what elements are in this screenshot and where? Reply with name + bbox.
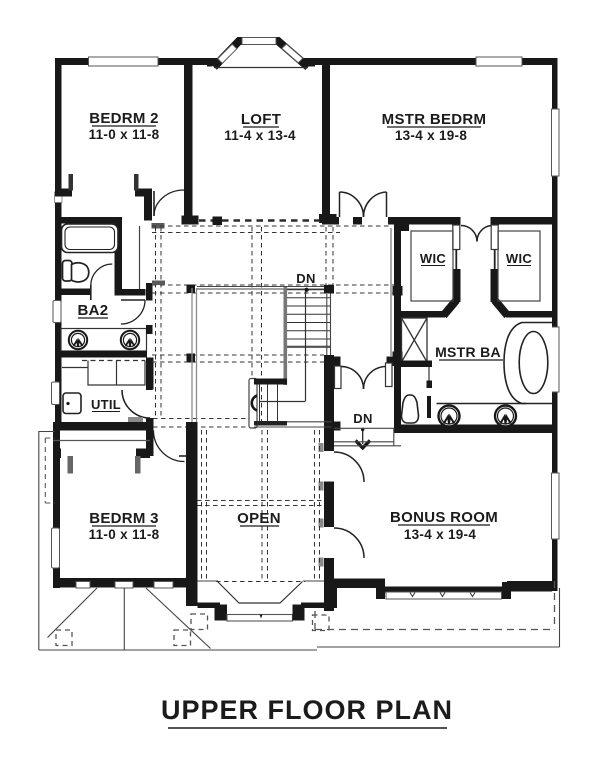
svg-text:BEDRM 3: BEDRM 3 [89, 510, 159, 527]
svg-text:WIC: WIC [420, 251, 446, 266]
svg-text:11-4 x 13-4: 11-4 x 13-4 [224, 128, 296, 143]
svg-text:LOFT: LOFT [241, 111, 281, 128]
svg-text:MSTR BA: MSTR BA [435, 344, 501, 360]
svg-text:BONUS ROOM: BONUS ROOM [390, 509, 498, 526]
svg-text:BA2: BA2 [78, 302, 109, 319]
svg-text:BEDRM 2: BEDRM 2 [89, 110, 159, 127]
svg-text:UTIL: UTIL [91, 397, 121, 412]
svg-text:DN: DN [296, 271, 315, 286]
svg-text:UPPER FLOOR PLAN: UPPER FLOOR PLAN [161, 695, 453, 725]
svg-text:DN: DN [353, 411, 372, 426]
svg-text:OPEN: OPEN [237, 510, 281, 527]
svg-text:13-4 x 19-4: 13-4 x 19-4 [404, 527, 477, 542]
svg-text:11-0 x 11-8: 11-0 x 11-8 [89, 127, 160, 142]
svg-text:11-0 x 11-8: 11-0 x 11-8 [89, 527, 160, 542]
svg-text:MSTR BEDRM: MSTR BEDRM [382, 111, 487, 128]
svg-text:WIC: WIC [506, 251, 532, 266]
svg-text:13-4 x 19-8: 13-4 x 19-8 [395, 128, 468, 143]
